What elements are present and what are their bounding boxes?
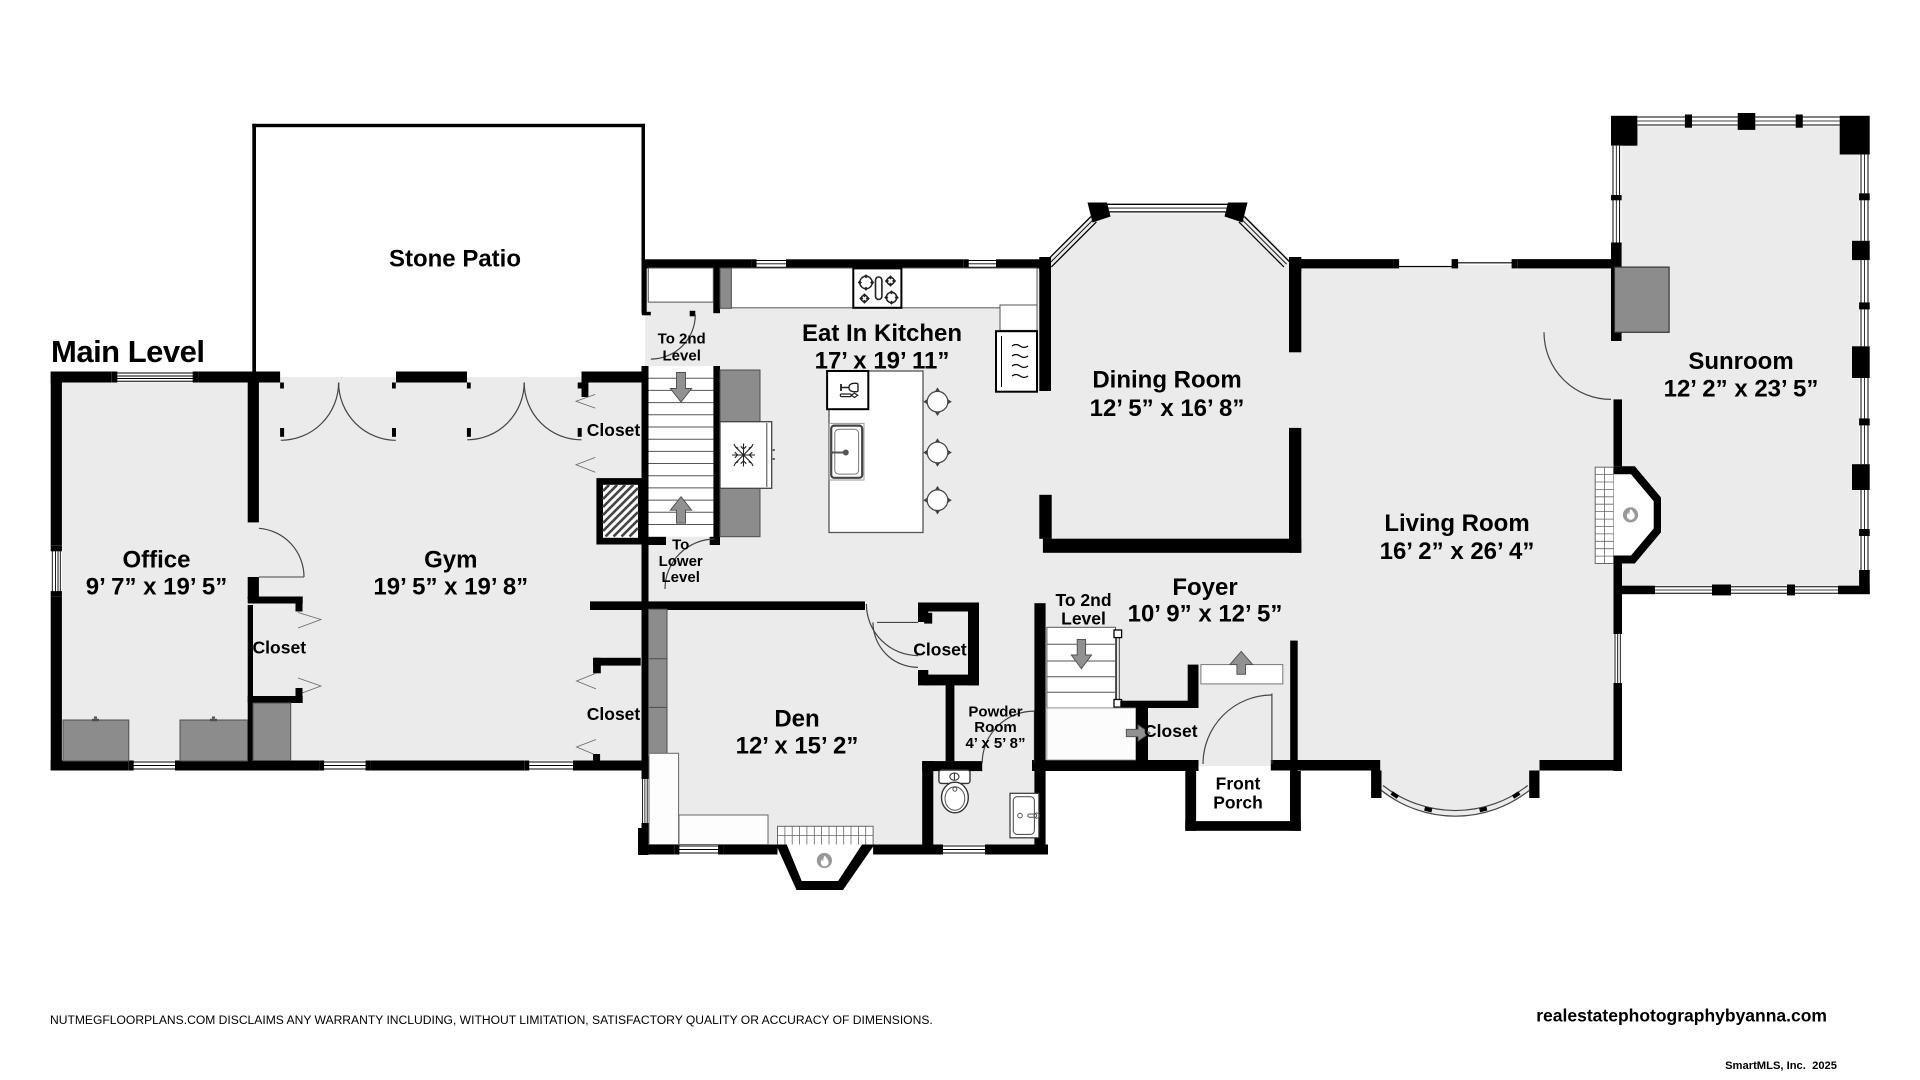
svg-text:9’ 7” x 19’ 5”: 9’ 7” x 19’ 5” <box>86 574 227 601</box>
svg-text:12’ 2” x 23’ 5”: 12’ 2” x 23’ 5” <box>1664 376 1819 403</box>
svg-text:Sunroom: Sunroom <box>1688 348 1793 375</box>
svg-text:SmartMLS, Inc. 2025: SmartMLS, Inc. 2025 <box>1725 1060 1837 1072</box>
svg-text:Closet: Closet <box>253 638 307 658</box>
svg-text:19’ 5” x 19’ 8”: 19’ 5” x 19’ 8” <box>373 574 528 601</box>
svg-text:To: To <box>672 537 689 554</box>
svg-text:Foyer: Foyer <box>1172 574 1237 601</box>
svg-text:Closet: Closet <box>1144 721 1198 741</box>
svg-text:12’ 5” x 16’ 8”: 12’ 5” x 16’ 8” <box>1090 395 1245 422</box>
svg-text:17’ x 19’ 11”: 17’ x 19’ 11” <box>815 348 950 375</box>
svg-text:16’ 2” x 26’ 4”: 16’ 2” x 26’ 4” <box>1380 538 1535 565</box>
svg-text:To 2nd: To 2nd <box>1055 590 1111 610</box>
svg-text:Office: Office <box>122 547 190 574</box>
svg-text:Porch: Porch <box>1213 793 1263 813</box>
svg-text:Lower: Lower <box>659 553 703 570</box>
svg-text:Room: Room <box>974 719 1017 736</box>
svg-text:Living Room: Living Room <box>1384 510 1529 537</box>
svg-text:Dining Room: Dining Room <box>1092 367 1241 394</box>
svg-text:Powder: Powder <box>968 704 1022 721</box>
svg-text:Level: Level <box>662 569 700 586</box>
svg-text:Level: Level <box>663 348 701 365</box>
svg-text:Main Level: Main Level <box>51 334 205 369</box>
svg-text:10’ 9” x 12’ 5”: 10’ 9” x 12’ 5” <box>1128 601 1283 628</box>
svg-text:4’ x 5’ 8”: 4’ x 5’ 8” <box>965 735 1025 752</box>
svg-text:Closet: Closet <box>913 640 967 660</box>
svg-text:To 2nd: To 2nd <box>658 331 706 348</box>
svg-text:Closet: Closet <box>587 420 641 440</box>
svg-text:Stone Patio: Stone Patio <box>389 246 521 273</box>
svg-text:Den: Den <box>774 706 819 733</box>
svg-text:Level: Level <box>1061 609 1106 629</box>
svg-text:Gym: Gym <box>424 547 477 574</box>
svg-text:realestatephotographybyanna.co: realestatephotographybyanna.com <box>1536 1006 1827 1026</box>
svg-text:NUTMEGFLOORPLANS.COM DISCLAIMS: NUTMEGFLOORPLANS.COM DISCLAIMS ANY WARRA… <box>50 1013 933 1027</box>
svg-text:12’ x 15’ 2”: 12’ x 15’ 2” <box>736 733 859 760</box>
svg-text:Eat In Kitchen: Eat In Kitchen <box>802 320 962 347</box>
svg-text:Closet: Closet <box>587 704 641 724</box>
svg-text:Front: Front <box>1216 774 1261 794</box>
